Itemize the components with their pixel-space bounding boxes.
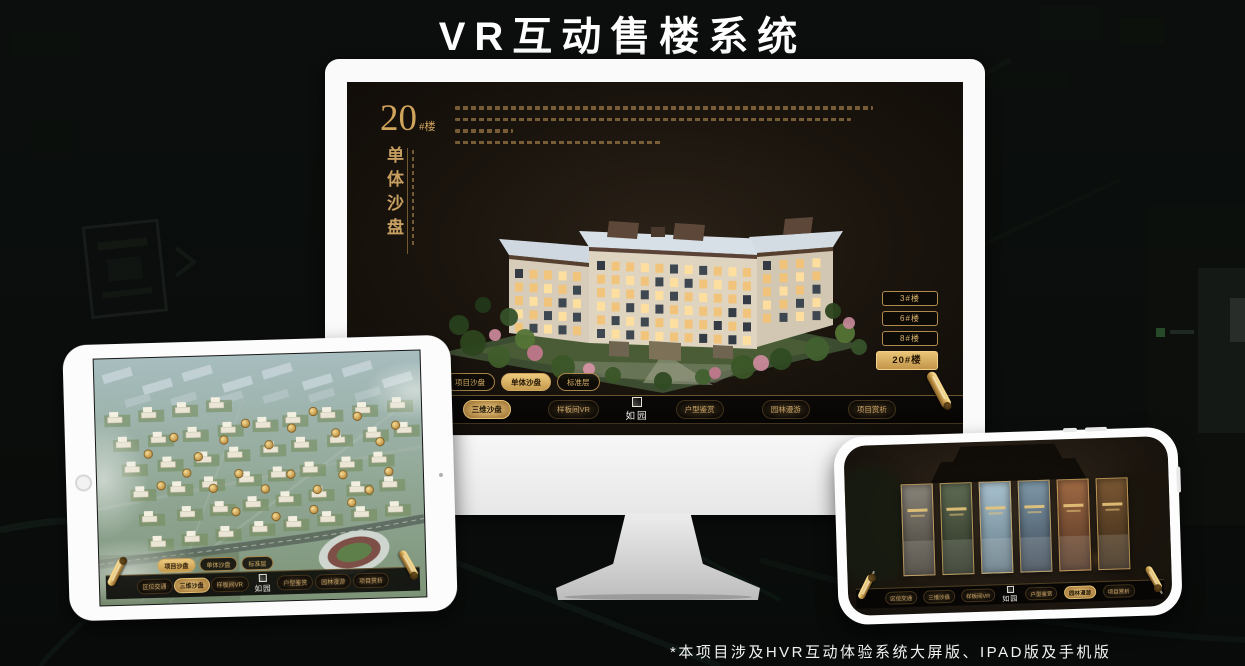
building-badge[interactable] — [183, 469, 192, 478]
building-badge[interactable] — [365, 486, 374, 495]
nav-item[interactable]: 三维沙盘 — [923, 590, 955, 604]
nav-item[interactable]: 项目赏析 — [848, 400, 896, 419]
brand-logo-label: 如园 — [626, 408, 649, 422]
building-badge[interactable] — [232, 507, 241, 516]
hero-banner: VR互动售楼系统 20#楼 单体沙盘 — [0, 0, 1245, 666]
building-badge[interactable] — [241, 419, 250, 428]
brand-seal-icon — [259, 573, 267, 581]
nav-item[interactable]: 区位交通 — [136, 578, 172, 594]
phone-side-button[interactable] — [1176, 467, 1181, 493]
nav-left-group: 区位交通三维沙盘样板间VR — [882, 588, 998, 605]
nav-item[interactable]: 三维沙盘 — [173, 577, 209, 593]
sandtable-tab[interactable]: 单体沙盘 — [199, 557, 237, 572]
nav-right-group: 户型鉴赏园林漫游项目赏析 — [276, 572, 390, 590]
nav-item[interactable]: 样板间VR — [961, 588, 996, 602]
building-badge[interactable] — [261, 485, 270, 494]
scene-card-label — [907, 509, 927, 513]
sandtable-tab[interactable]: 项目沙盘 — [157, 558, 195, 573]
subtitle-divider — [407, 148, 408, 254]
pavilion-silhouette — [929, 443, 1086, 484]
building-badge[interactable] — [170, 433, 179, 442]
floor-button[interactable]: 6#楼 — [882, 311, 938, 326]
scene-card-sublabel — [1106, 508, 1120, 510]
sandtable-tab[interactable]: 标准层 — [557, 373, 600, 391]
nav-item[interactable]: 项目赏析 — [353, 572, 389, 588]
floor-title: 20#楼 — [380, 100, 436, 137]
building-badge[interactable] — [347, 498, 356, 507]
floor-subtitle-vertical: 单体沙盘 — [381, 146, 406, 242]
brand-seal-icon — [1006, 585, 1013, 592]
footnote: *本项目涉及HVR互动体验系统大屏版、IPAD版及手机版 — [670, 641, 1111, 662]
scene-card-label — [946, 507, 966, 511]
scroll-menu-icon[interactable] — [925, 370, 953, 410]
scene-card-sublabel — [911, 515, 925, 517]
sandtable-tab[interactable]: 项目沙盘 — [445, 373, 495, 391]
floor-button[interactable]: 3#楼 — [882, 291, 938, 306]
nav-item[interactable]: 区位交通 — [885, 591, 917, 605]
nav-item[interactable]: 园林漫游 — [1064, 585, 1096, 599]
scene-card-label — [985, 506, 1005, 510]
building-badge[interactable] — [157, 481, 166, 490]
floor-button-group: 3#楼6#楼8#楼20#楼 — [876, 291, 938, 370]
nav-item[interactable]: 户型鉴赏 — [277, 575, 313, 591]
nav-item[interactable]: 样板间VR — [210, 576, 249, 592]
scene-card[interactable] — [940, 482, 975, 575]
building-badge[interactable] — [309, 407, 318, 416]
phone-navbar: 区位交通三维沙盘样板间VR 如园 户型鉴赏园林漫游项目赏析 — [856, 579, 1164, 609]
phone-screen[interactable]: 区位交通三维沙盘样板间VR 如园 户型鉴赏园林漫游项目赏析 — [843, 436, 1172, 616]
brand-logo[interactable]: 如园 — [626, 397, 649, 422]
nav-left-group: 区位交通三维沙盘样板间VR — [136, 576, 250, 594]
nav-right-group: 户型鉴赏园林漫游项目赏析 — [1022, 584, 1138, 601]
tablet-device: 项目沙盘单体沙盘标准层 区位交通三维沙盘样板间VR 如园 户型鉴赏园林漫游项目赏… — [62, 335, 458, 622]
tablet-screen: 项目沙盘单体沙盘标准层 区位交通三维沙盘样板间VR 如园 户型鉴赏园林漫游项目赏… — [93, 349, 428, 606]
floor-button[interactable]: 8#楼 — [882, 331, 938, 346]
scene-card[interactable] — [901, 483, 936, 576]
scene-card-label — [1102, 502, 1122, 506]
nav-item[interactable]: 户型鉴赏 — [676, 400, 724, 419]
phone-volume-button[interactable] — [1085, 427, 1107, 432]
building-badge[interactable] — [194, 452, 203, 461]
page-title: VR互动售楼系统 — [0, 4, 1245, 62]
brand-logo[interactable]: 如园 — [254, 573, 272, 593]
building-badge[interactable] — [331, 429, 340, 438]
scene-card[interactable] — [1057, 478, 1092, 571]
tablet-camera-dot — [439, 473, 443, 477]
nav-item[interactable]: 样板间VR — [548, 400, 599, 419]
building-badge[interactable] — [272, 512, 281, 521]
building-badge[interactable] — [339, 470, 348, 479]
nav-item[interactable]: 园林漫游 — [762, 400, 810, 419]
scene-card[interactable] — [1018, 480, 1053, 573]
scene-card-sublabel — [950, 513, 964, 515]
building-3d-viewport[interactable] — [413, 135, 883, 400]
sandtable-tab[interactable]: 单体沙盘 — [501, 373, 551, 391]
floor-number: 20 — [380, 98, 417, 139]
building-badge[interactable] — [391, 421, 400, 430]
scene-card-label — [1063, 504, 1083, 508]
nav-item[interactable]: 三维沙盘 — [463, 400, 511, 419]
building-badge[interactable] — [287, 470, 296, 479]
building-badge[interactable] — [144, 450, 153, 459]
tablet-home-button[interactable] — [75, 474, 92, 491]
brand-logo-label: 如园 — [1002, 593, 1018, 603]
nav-item[interactable]: 户型鉴赏 — [1025, 586, 1057, 600]
scene-card-sublabel — [1067, 510, 1081, 512]
scene-card-strip — [901, 477, 1131, 576]
brand-logo[interactable]: 如园 — [1002, 585, 1019, 603]
nav-right-group: 户型鉴赏园林漫游项目赏析 — [657, 400, 916, 419]
nav-item[interactable]: 园林漫游 — [315, 573, 351, 589]
scene-card[interactable] — [979, 481, 1014, 574]
scene-card-label — [1024, 505, 1044, 509]
sandtable-tab[interactable]: 标准层 — [241, 556, 273, 571]
scene-card[interactable] — [1096, 477, 1131, 570]
building-badge[interactable] — [313, 485, 322, 494]
building-badge[interactable] — [265, 440, 274, 449]
sandtable-subtabs: 项目沙盘单体沙盘标准层 — [445, 373, 600, 391]
brand-logo-label: 如园 — [254, 582, 271, 593]
nav-item[interactable]: 项目赏析 — [1103, 584, 1135, 598]
floor-button[interactable]: 20#楼 — [876, 351, 938, 370]
building-badge[interactable] — [287, 424, 296, 433]
building-badge[interactable] — [310, 505, 319, 514]
brand-seal-icon — [632, 397, 642, 407]
scene-card-sublabel — [1028, 511, 1042, 513]
building-badge[interactable] — [376, 437, 385, 446]
building-badge[interactable] — [220, 436, 229, 445]
building-badge[interactable] — [235, 469, 244, 478]
phone-device: 区位交通三维沙盘样板间VR 如园 户型鉴赏园林漫游项目赏析 — [833, 427, 1183, 626]
scene-card-sublabel — [989, 512, 1003, 514]
floor-number-suffix: #楼 — [419, 121, 436, 133]
building-badge[interactable] — [353, 412, 362, 421]
building-badge[interactable] — [209, 484, 218, 493]
building-badge[interactable] — [385, 467, 394, 476]
phone-mute-switch[interactable] — [1063, 428, 1077, 432]
